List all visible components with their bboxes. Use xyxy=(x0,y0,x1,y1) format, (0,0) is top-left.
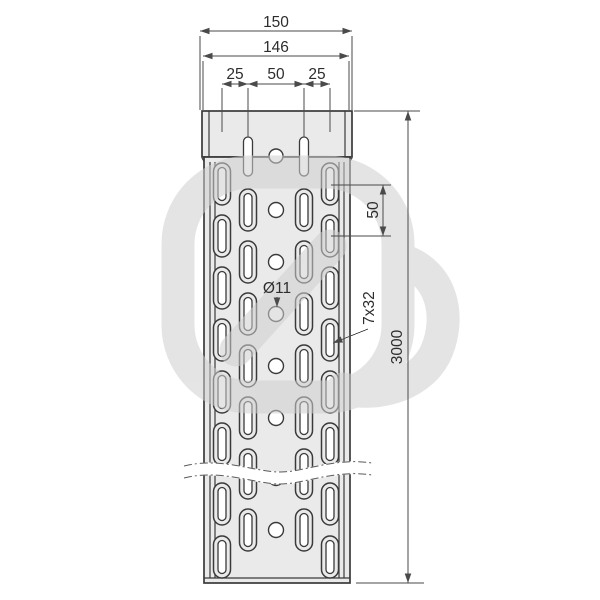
drawing-page: 150 146 25 50 25 50 7x32 3000 Ø11 xyxy=(0,0,600,600)
dim-overall-width-label: 150 xyxy=(263,14,289,31)
slot-7x32 xyxy=(244,246,252,279)
hole-o11 xyxy=(269,255,284,270)
slot-7x32 xyxy=(326,272,334,305)
hole-o11 xyxy=(269,203,284,218)
dimension-arrowhead xyxy=(343,28,353,35)
dimension-arrowhead xyxy=(405,111,412,121)
slot-7x32 xyxy=(326,324,334,357)
dim-length-label: 3000 xyxy=(389,329,406,364)
dim-edge-to-slot-label: 25 xyxy=(226,66,243,83)
slot-7x32 xyxy=(300,514,308,547)
technical-drawing: 150 146 25 50 25 50 7x32 3000 Ø11 xyxy=(0,0,600,600)
slot-7x32 xyxy=(326,428,334,461)
slot-size-label: 7x32 xyxy=(361,291,378,325)
dimension-arrowhead xyxy=(203,53,213,60)
dim-row-spacing-label: 50 xyxy=(365,201,382,219)
dimension-arrowhead xyxy=(340,53,350,60)
dim-flange-width-label: 146 xyxy=(263,39,289,56)
dimension-arrowhead xyxy=(248,81,258,88)
slot-7x32 xyxy=(244,514,252,547)
hole-o11 xyxy=(269,359,284,374)
hole-diameter-label: Ø11 xyxy=(263,280,291,297)
dim-slot-to-slot-label: 50 xyxy=(267,66,285,83)
dimension-arrowhead xyxy=(405,574,412,584)
slot-7x32 xyxy=(300,194,308,227)
slot-7x32 xyxy=(218,272,226,305)
slot-7x32 xyxy=(218,488,226,521)
slot-7x32 xyxy=(300,350,308,383)
dim-slot-to-edge-label: 25 xyxy=(308,66,325,83)
slot-7x32 xyxy=(326,488,334,521)
slot-7x32 xyxy=(218,541,226,574)
dimension-arrowhead xyxy=(295,81,305,88)
slot-7x32 xyxy=(218,220,226,253)
dimension-arrowhead xyxy=(200,28,210,35)
hole-o11 xyxy=(269,523,284,538)
slot-7x32 xyxy=(244,194,252,227)
slot-7x32 xyxy=(218,428,226,461)
slot-7x32 xyxy=(326,541,334,574)
